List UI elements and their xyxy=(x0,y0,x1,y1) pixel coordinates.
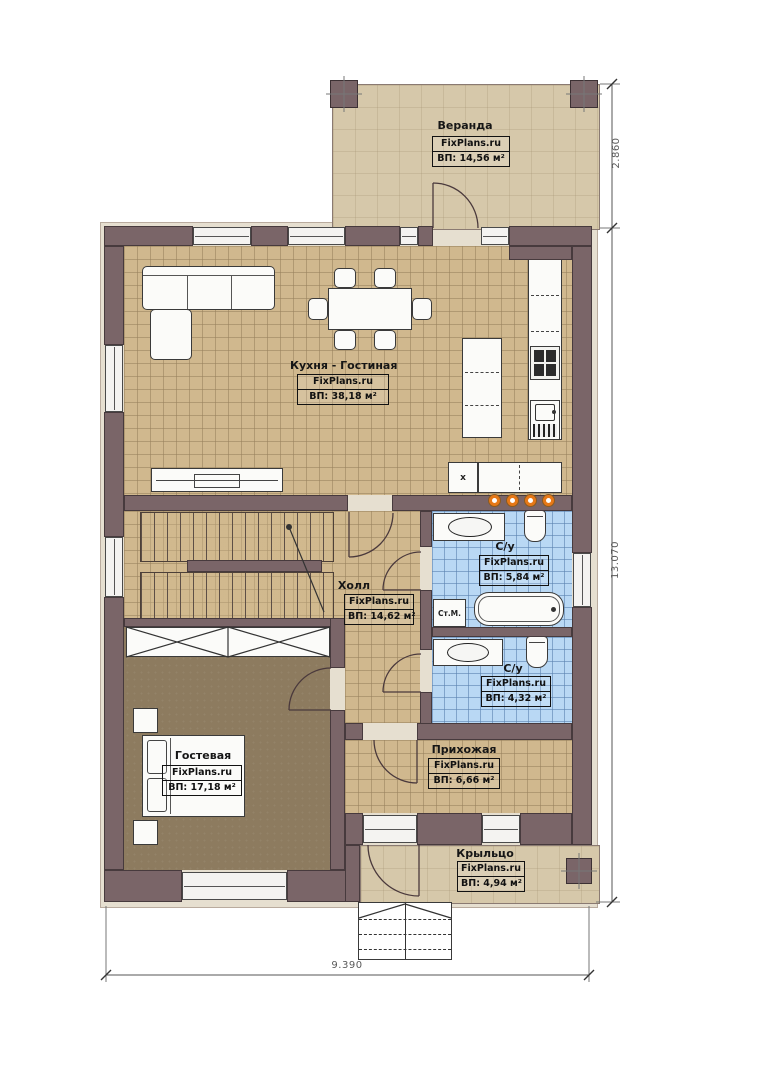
lamp-dot xyxy=(489,495,500,506)
stove xyxy=(530,346,560,380)
exterior-stairs xyxy=(358,902,452,960)
wall xyxy=(104,597,124,870)
wall xyxy=(509,246,572,260)
wall xyxy=(104,870,182,902)
washbasin xyxy=(448,517,492,537)
window xyxy=(288,227,345,245)
area-value: ВП: 17,18 м² xyxy=(162,780,242,796)
wall xyxy=(420,511,432,547)
room-title-guest-room: Гостевая xyxy=(168,749,238,762)
window xyxy=(105,345,123,412)
fixplans-watermark: FixPlans.ru xyxy=(479,555,549,571)
wall xyxy=(420,590,432,650)
fixplans-watermark: FixPlans.ru xyxy=(457,861,525,877)
window xyxy=(400,227,418,245)
chair xyxy=(374,330,396,350)
area-value: ВП: 14,56 м² xyxy=(432,151,510,167)
area-value: ВП: 14,62 м² xyxy=(344,609,414,625)
dimension-veranda-depth: 2.860 xyxy=(611,133,625,173)
room-label-bathroom-2: FixPlans.ru ВП: 4,32 м² xyxy=(481,676,551,707)
wall xyxy=(104,226,193,246)
fixplans-watermark: FixPlans.ru xyxy=(428,758,500,774)
hall-corridor-floor xyxy=(345,618,420,723)
wardrobe xyxy=(126,627,330,657)
area-value: ВП: 38,18 м² xyxy=(297,389,389,405)
wall xyxy=(572,246,592,553)
chair xyxy=(334,330,356,350)
chair xyxy=(412,298,432,320)
washbasin xyxy=(447,643,489,662)
lamp-dot xyxy=(525,495,536,506)
veranda-column-right xyxy=(570,80,598,108)
lamp-dot xyxy=(507,495,518,506)
fixplans-watermark: FixPlans.ru xyxy=(432,136,510,152)
room-title-veranda: Веранда xyxy=(410,119,520,132)
washing-machine-label: Ст.М. xyxy=(434,600,465,626)
wall xyxy=(432,627,572,637)
fixplans-watermark: FixPlans.ru xyxy=(162,765,242,781)
wall xyxy=(104,412,124,537)
wall xyxy=(345,813,363,845)
room-title-entry-hall: Прихожая xyxy=(424,743,504,756)
chair xyxy=(308,298,328,320)
room-label-bathroom-1: FixPlans.ru ВП: 5,84 м² xyxy=(479,555,549,586)
toilet xyxy=(526,636,548,668)
kitchen-sink xyxy=(530,400,560,440)
staircase-landing-rail xyxy=(187,560,322,572)
lamp-dot xyxy=(543,495,554,506)
sofa xyxy=(142,266,275,310)
fixplans-watermark: FixPlans.ru xyxy=(481,676,551,692)
wall xyxy=(345,226,400,246)
washing-machine: Ст.М. xyxy=(433,599,466,627)
room-label-entry-hall: FixPlans.ru ВП: 6,66 м² xyxy=(428,758,500,789)
staircase-lower-flight xyxy=(140,572,334,620)
window xyxy=(193,227,251,245)
nightstand xyxy=(133,708,158,733)
wall xyxy=(345,845,360,902)
kitchen-counter-bottom xyxy=(478,462,562,493)
wall xyxy=(417,723,572,740)
window xyxy=(573,553,591,607)
room-title-bathroom-2: С/у xyxy=(498,662,528,675)
wall xyxy=(124,618,345,627)
room-title-porch: Крыльцо xyxy=(445,847,525,860)
wall xyxy=(330,710,345,870)
floor-plan: x Ст.М. xyxy=(0,0,763,1080)
appliance: x xyxy=(448,462,478,493)
porch-column xyxy=(566,858,592,884)
dimension-house-height: 13.070 xyxy=(610,535,624,585)
room-title-kitchen-living: Кухня - Гостиная xyxy=(290,359,396,372)
window xyxy=(182,872,287,900)
entry-door-threshold xyxy=(363,815,417,843)
area-value: ВП: 4,94 м² xyxy=(457,876,525,892)
window xyxy=(481,227,509,245)
nightstand xyxy=(133,820,158,845)
area-value: ВП: 4,32 м² xyxy=(481,691,551,707)
fixplans-watermark: FixPlans.ru xyxy=(344,594,414,610)
dimension-house-width: 9.390 xyxy=(322,960,372,971)
toilet xyxy=(524,510,546,542)
room-label-veranda: FixPlans.ru ВП: 14,56 м² xyxy=(432,136,510,167)
staircase-upper-flight xyxy=(140,512,334,562)
wall xyxy=(104,246,124,345)
wall xyxy=(418,226,433,246)
area-value: ВП: 6,66 м² xyxy=(428,773,500,789)
sofa-chaise xyxy=(150,309,192,360)
window xyxy=(482,815,520,843)
kitchen-island xyxy=(462,338,502,438)
window xyxy=(105,537,123,597)
wall xyxy=(330,618,345,668)
room-label-guest-room: FixPlans.ru ВП: 17,18 м² xyxy=(162,765,242,796)
wall xyxy=(509,226,592,246)
wall xyxy=(520,813,572,845)
room-title-hall: Холл xyxy=(334,579,374,592)
wall xyxy=(124,495,348,511)
chair xyxy=(334,268,356,288)
dining-table xyxy=(328,288,412,330)
bathtub xyxy=(474,592,564,626)
wall xyxy=(572,607,592,845)
room-label-hall: FixPlans.ru ВП: 14,62 м² xyxy=(344,594,414,625)
appliance-mark: x xyxy=(449,463,477,492)
wall xyxy=(417,813,482,845)
wall xyxy=(345,723,363,740)
chair xyxy=(374,268,396,288)
room-title-bathroom-1: С/у xyxy=(490,540,520,553)
wall xyxy=(251,226,288,246)
room-label-porch: FixPlans.ru ВП: 4,94 м² xyxy=(457,861,525,892)
wall xyxy=(420,692,432,727)
room-label-kitchen-living: FixPlans.ru ВП: 38,18 м² xyxy=(297,374,389,405)
veranda-column-left xyxy=(330,80,358,108)
area-value: ВП: 5,84 м² xyxy=(479,570,549,586)
tv-stand xyxy=(151,468,283,492)
